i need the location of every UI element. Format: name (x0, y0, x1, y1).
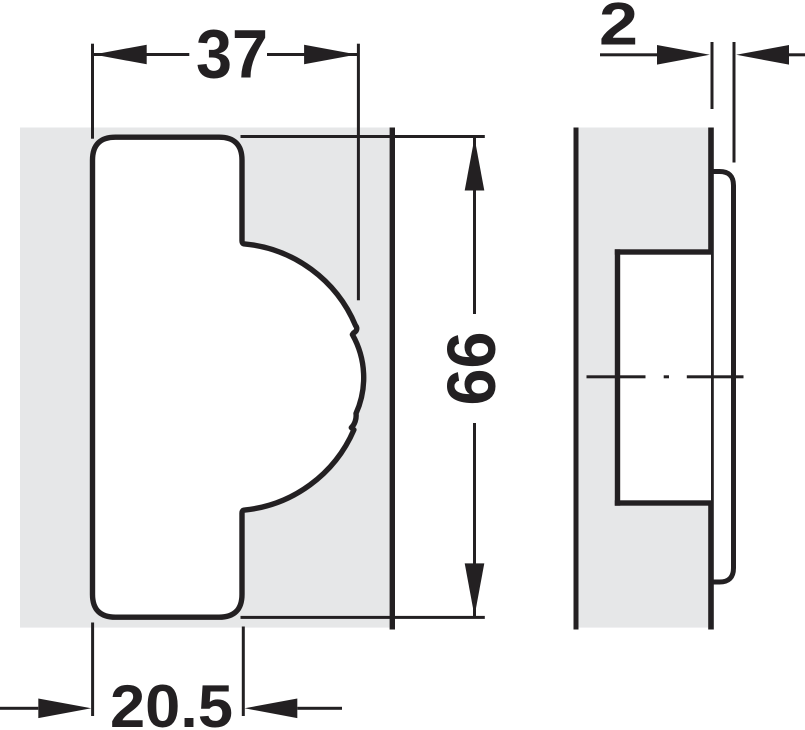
svg-text:20.5: 20.5 (110, 673, 233, 730)
svg-text:2: 2 (599, 0, 638, 58)
svg-text:66: 66 (433, 332, 510, 406)
svg-text:37: 37 (196, 16, 268, 93)
